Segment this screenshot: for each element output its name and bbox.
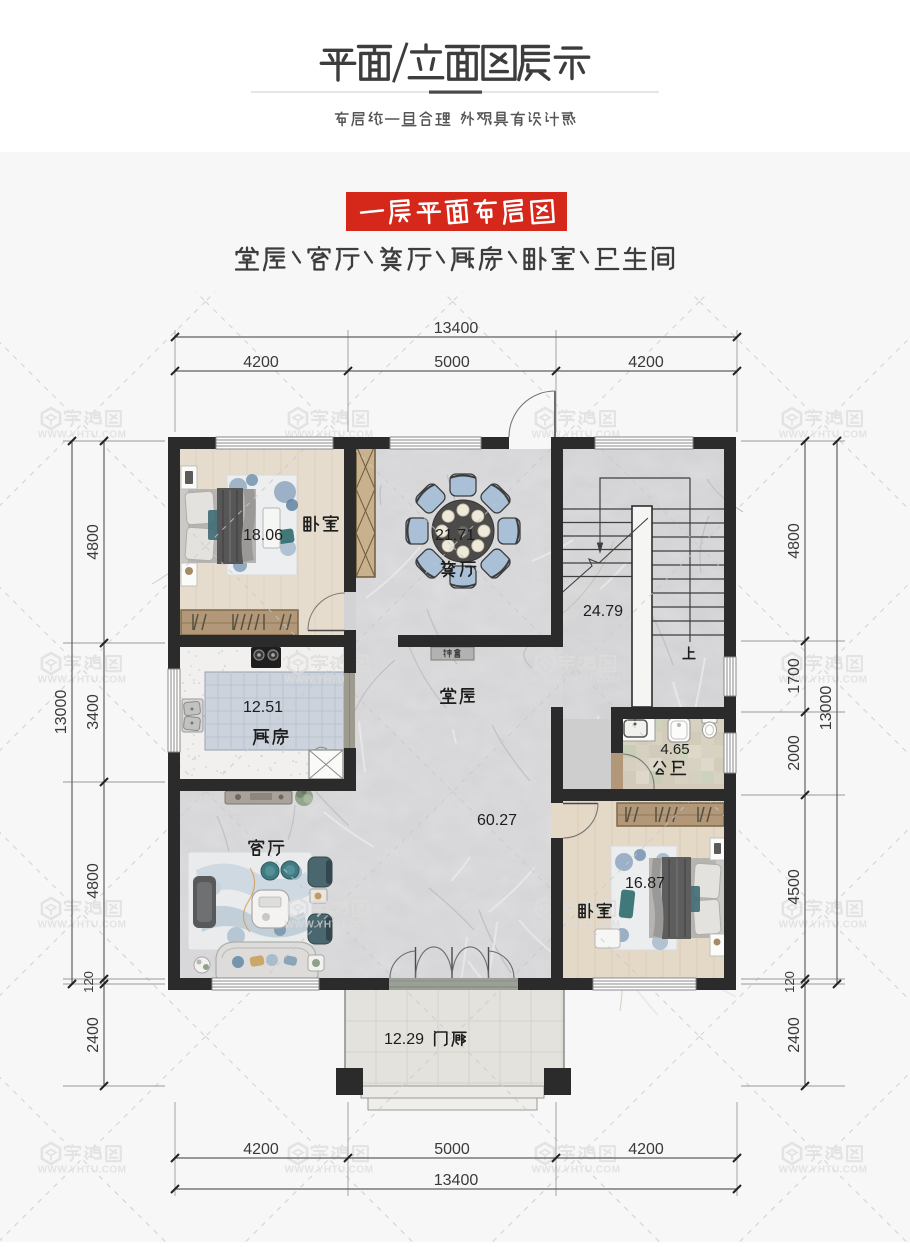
- svg-text:WWW.YHTU.COM: WWW.YHTU.COM: [285, 1165, 374, 1176]
- svg-text:4800: 4800: [85, 524, 102, 560]
- svg-text:WWW.YHTU.COM: WWW.YHTU.COM: [779, 920, 868, 931]
- svg-text:WWW.YHTU.COM: WWW.YHTU.COM: [38, 1165, 127, 1176]
- svg-text:13400: 13400: [434, 320, 479, 337]
- svg-text:WWW.YHTU.COM: WWW.YHTU.COM: [38, 675, 127, 686]
- svg-text:2400: 2400: [85, 1017, 102, 1053]
- svg-text:13000: 13000: [818, 686, 835, 731]
- svg-text:4200: 4200: [243, 354, 279, 371]
- svg-text:WWW.YHTU.COM: WWW.YHTU.COM: [38, 430, 127, 441]
- svg-text:5000: 5000: [434, 1141, 470, 1158]
- svg-text:21.71: 21.71: [435, 527, 475, 544]
- svg-text:WWW.YHTU.COM: WWW.YHTU.COM: [532, 920, 621, 931]
- svg-text:WWW.YHTU.COM: WWW.YHTU.COM: [779, 430, 868, 441]
- svg-text:5000: 5000: [434, 354, 470, 371]
- svg-text:4500: 4500: [786, 869, 803, 905]
- svg-text:WWW.YHTU.COM: WWW.YHTU.COM: [285, 675, 374, 686]
- svg-text:4800: 4800: [786, 523, 803, 559]
- svg-text:12.51: 12.51: [243, 699, 283, 716]
- svg-text:13400: 13400: [434, 1172, 479, 1189]
- svg-text:60.27: 60.27: [477, 812, 517, 829]
- svg-text:4200: 4200: [243, 1141, 279, 1158]
- svg-text:13000: 13000: [53, 690, 70, 735]
- svg-text:120: 120: [782, 971, 797, 993]
- svg-text:2000: 2000: [786, 735, 803, 771]
- svg-text:2400: 2400: [786, 1017, 803, 1053]
- svg-text:4.65: 4.65: [660, 741, 689, 758]
- svg-text:3400: 3400: [85, 694, 102, 730]
- svg-text:WWW.YHTU.COM: WWW.YHTU.COM: [779, 1165, 868, 1176]
- svg-text:WWW.YHTU.COM: WWW.YHTU.COM: [285, 920, 374, 931]
- svg-text:WWW.YHTU.COM: WWW.YHTU.COM: [532, 1165, 621, 1176]
- svg-text:120: 120: [81, 971, 96, 993]
- svg-text:4800: 4800: [85, 863, 102, 899]
- svg-text:WWW.YHTU.COM: WWW.YHTU.COM: [38, 920, 127, 931]
- svg-text:4200: 4200: [628, 354, 664, 371]
- svg-text:1700: 1700: [786, 658, 803, 694]
- svg-text:4200: 4200: [628, 1141, 664, 1158]
- svg-text:WWW.YHTU.COM: WWW.YHTU.COM: [532, 675, 621, 686]
- svg-text:18.06: 18.06: [243, 527, 283, 544]
- svg-text:24.79: 24.79: [583, 603, 623, 620]
- svg-text:16.87: 16.87: [625, 875, 665, 892]
- svg-text:12.29: 12.29: [384, 1031, 424, 1048]
